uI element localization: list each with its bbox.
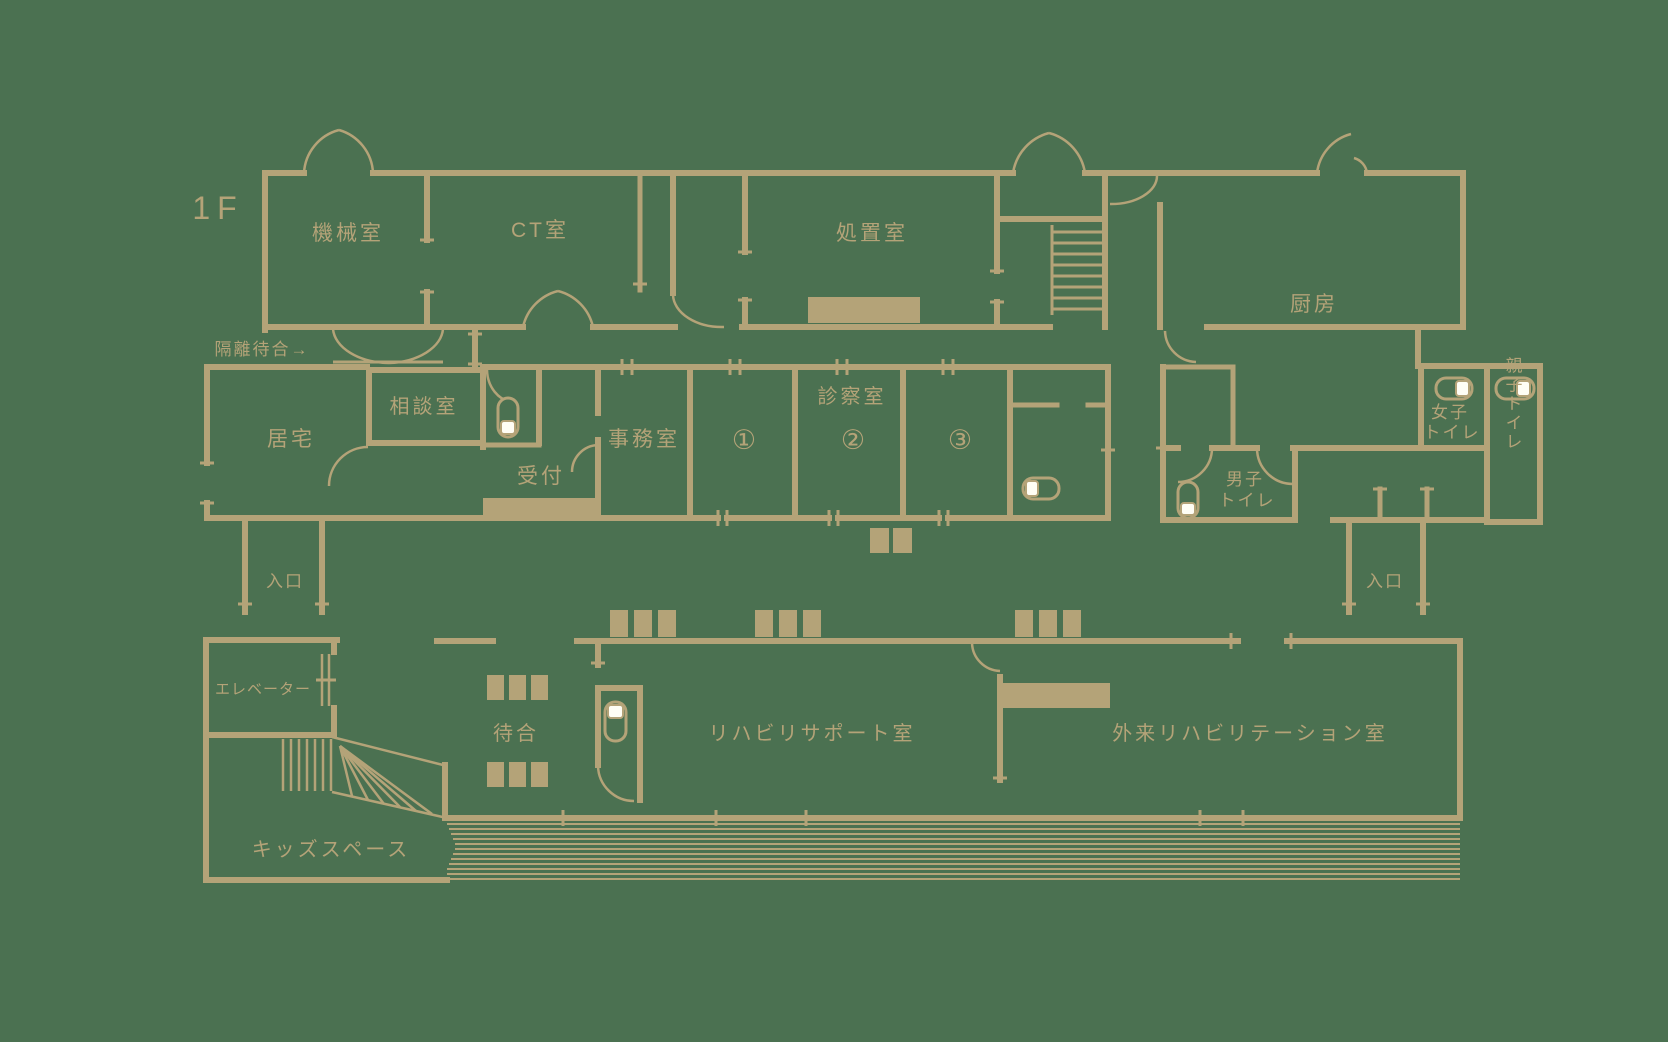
label-entrance-left: 入口: [266, 572, 304, 591]
label-treatment-room: 処置室: [836, 222, 908, 245]
label-elevator: エレベーター: [215, 681, 311, 698]
label-womens-toilet-line1: 女子: [1431, 403, 1469, 422]
floor-plan-canvas: 1F 機械室 CT室 処置室 厨房 隔離待合→ 相談室 居宅 受付 事務室 診察…: [0, 0, 1668, 1042]
label-ct-room: CT室: [511, 219, 569, 242]
label-residence: 居宅: [267, 428, 315, 451]
label-machine-room: 機械室: [312, 222, 384, 245]
toilet-icon-mens: [1178, 482, 1198, 518]
label-womens-toilet-line2: トイレ: [1424, 423, 1481, 442]
label-waiting: 待合: [493, 722, 539, 745]
floor-label: 1F: [192, 190, 243, 226]
toilet-icon-reception: [498, 398, 518, 437]
label-reception: 受付: [517, 465, 565, 488]
label-outpatient-rehab-room: 外来リハビリテーション室: [1112, 722, 1388, 745]
label-isolation-waiting: 隔離待合→: [215, 340, 310, 359]
label-rehab-support-room: リハビリサポート室: [709, 722, 916, 745]
toilet-icon-womens: [1436, 378, 1472, 399]
label-office: 事務室: [608, 428, 680, 451]
label-exam-room-1: ①: [732, 425, 756, 455]
label-kids-space: キッズスペース: [252, 838, 411, 861]
label-mens-toilet-line2: トイレ: [1219, 491, 1276, 510]
label-exam-room-2: ②: [841, 425, 865, 455]
label-mens-toilet-line1: 男子: [1226, 470, 1264, 489]
label-exam-room-3: ③: [948, 425, 972, 455]
label-consultation-room: 相談室: [390, 395, 459, 418]
toilet-icon-waiting: [605, 702, 626, 741]
label-kitchen: 厨房: [1290, 293, 1338, 316]
label-entrance-right: 入口: [1366, 572, 1404, 591]
toilet-icon-staff: [1023, 478, 1059, 499]
label-family-toilet: 親子トイレ: [1503, 356, 1523, 451]
label-exam-room: 診察室: [818, 385, 887, 408]
